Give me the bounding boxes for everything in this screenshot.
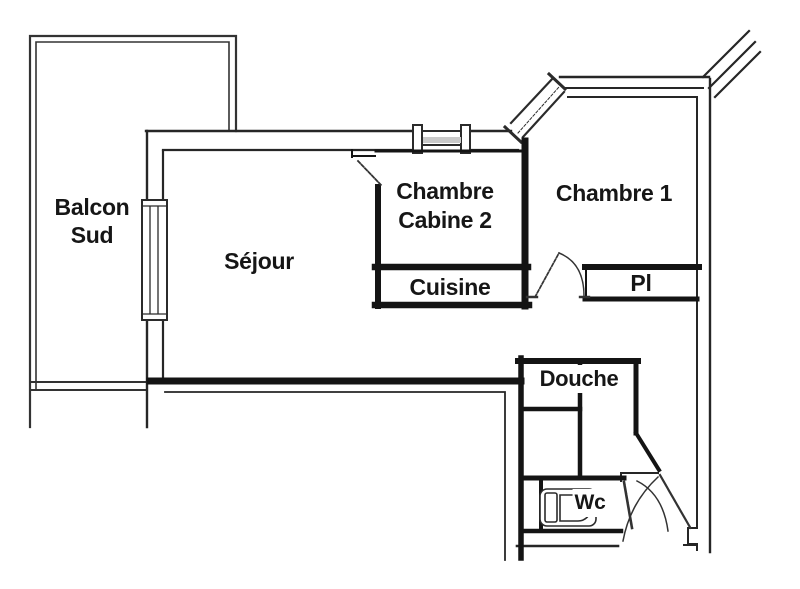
room-label-chambre-cabine-2: Chambre Cabine 2 xyxy=(396,177,494,235)
balcony-window-icon xyxy=(142,200,167,320)
room-label-douche: Douche xyxy=(538,365,621,393)
floorplan-page: Balcon Sud Séjour Chambre Cabine 2 Cuisi… xyxy=(0,0,800,589)
cabine-line2: Cabine 2 xyxy=(398,207,491,233)
balcon-line2: Sud xyxy=(71,222,114,248)
room-label-placard: Pl xyxy=(630,269,651,297)
bay-window-icon xyxy=(505,74,565,142)
balcon-line1: Balcon xyxy=(55,194,130,220)
floorplan-drawing xyxy=(0,0,800,589)
room-label-sejour: Séjour xyxy=(224,247,294,275)
room-label-wc: Wc xyxy=(573,489,608,517)
cabine-line1: Chambre xyxy=(396,178,494,204)
room-label-cuisine: Cuisine xyxy=(410,273,491,301)
room-label-balcon-sud: Balcon Sud xyxy=(55,193,130,249)
room-label-chambre-1: Chambre 1 xyxy=(556,179,672,207)
top-window-icon xyxy=(413,125,470,153)
